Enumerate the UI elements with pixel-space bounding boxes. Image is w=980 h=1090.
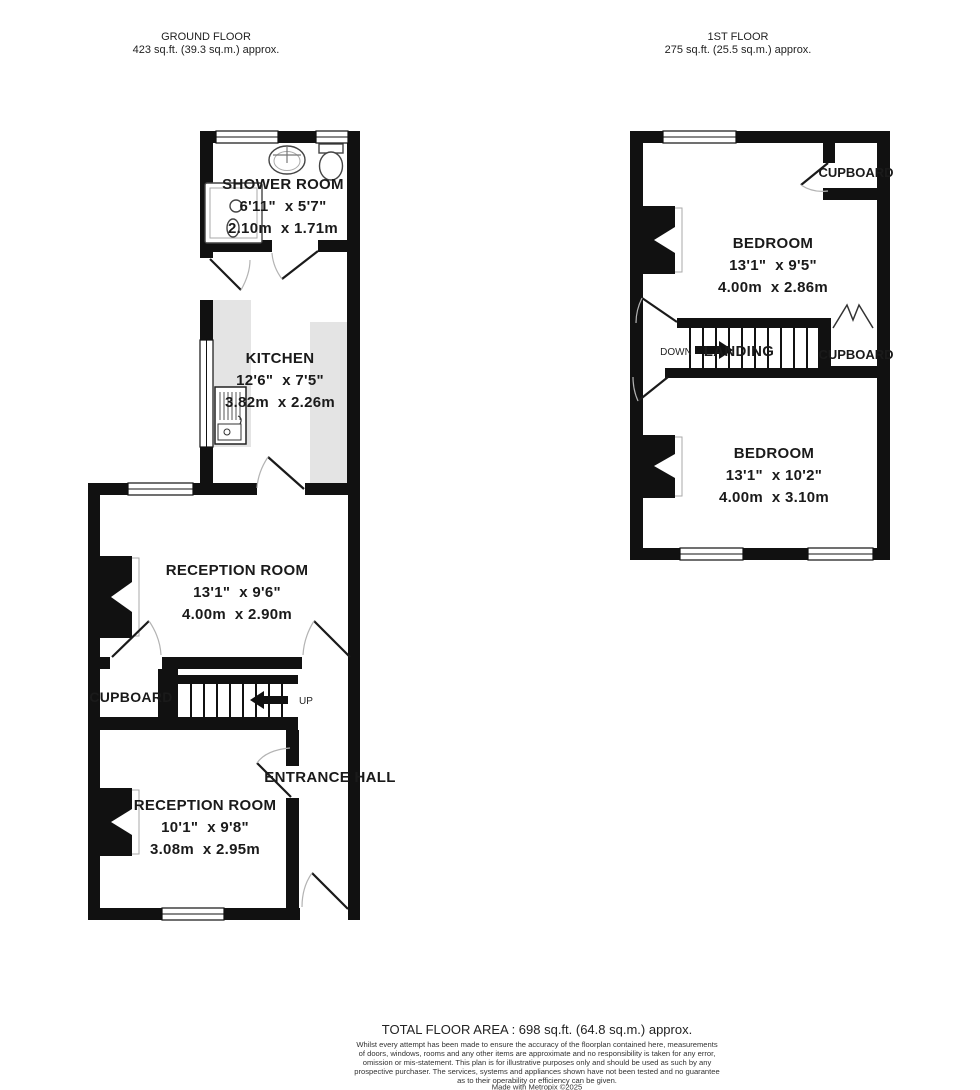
room-label: BEDROOM: [733, 235, 813, 252]
wall: [88, 908, 162, 920]
credit-line: Made with Metropix ©2025: [492, 1083, 582, 1090]
window: [663, 131, 736, 143]
window: [216, 131, 278, 143]
window: [128, 483, 193, 495]
door: [210, 259, 250, 290]
room-label: KITCHEN: [246, 350, 315, 367]
ground-floor-title: GROUND FLOOR: [161, 31, 251, 43]
first-floor-area: 275 sq.ft. (25.5 sq.m.) approx.: [665, 44, 812, 56]
disclaimer-line: Whilst every attempt has been made to en…: [356, 1040, 718, 1049]
room-dim-imperial: 10'1" x 9'8": [161, 819, 249, 836]
cupboard-label: CUPBOARD: [89, 689, 172, 705]
up-label: UP: [299, 696, 313, 707]
room-dim-imperial: 13'1" x 9'5": [729, 257, 817, 274]
wall: [823, 188, 890, 200]
chimney-breast: [643, 435, 682, 498]
wall: [224, 908, 300, 920]
ground-floor-area: 423 sq.ft. (39.3 sq.m.) approx.: [133, 44, 280, 56]
window: [808, 548, 873, 560]
front-door: [302, 873, 348, 909]
wall: [677, 318, 823, 328]
wall: [88, 657, 110, 669]
entrance-hall-label: ENTRANCE HALL: [264, 769, 395, 786]
room-dim-metric: 3.82m x 2.26m: [225, 394, 335, 411]
door: [257, 457, 304, 489]
room-dim-metric: 2.10m x 1.71m: [228, 220, 338, 237]
room-dim-imperial: 6'11" x 5'7": [240, 198, 327, 215]
room-label: SHOWER ROOM: [222, 176, 344, 193]
wall: [347, 131, 360, 495]
footer: TOTAL FLOOR AREA : 698 sq.ft. (64.8 sq.m…: [354, 1022, 719, 1090]
door: [303, 621, 350, 657]
ground-floor-plan: GROUND FLOOR 423 sq.ft. (39.3 sq.m.) app…: [88, 31, 396, 920]
wall: [348, 495, 360, 920]
first-floor-plan: 1ST FLOOR 275 sq.ft. (25.5 sq.m.) approx…: [630, 31, 894, 560]
window: [200, 340, 213, 447]
wall: [630, 131, 643, 560]
wall: [665, 368, 823, 378]
wall: [162, 657, 302, 669]
down-label: DOWN: [660, 347, 692, 358]
wall: [88, 717, 298, 730]
room-dim-metric: 4.00m x 2.86m: [718, 279, 828, 296]
room-label: RECEPTION ROOM: [166, 562, 309, 579]
door: [272, 251, 318, 279]
wall: [823, 143, 835, 163]
room-label: BEDROOM: [734, 445, 814, 462]
floorplan-canvas: GROUND FLOOR 423 sq.ft. (39.3 sq.m.) app…: [0, 0, 980, 1090]
wall: [193, 483, 257, 495]
wall: [286, 798, 299, 908]
landing-label: LANDING: [704, 343, 774, 360]
room-dim-imperial: 13'1" x 9'6": [193, 584, 281, 601]
room-dim-metric: 4.00m x 2.90m: [182, 606, 292, 623]
total-floor-area: TOTAL FLOOR AREA : 698 sq.ft. (64.8 sq.m…: [382, 1022, 692, 1037]
window: [162, 908, 224, 920]
first-floor-title: 1ST FLOOR: [708, 31, 769, 43]
disclaimer-line: prospective purchaser. The services, sys…: [354, 1067, 719, 1076]
disclaimer-line: of doors, windows, rooms and any other i…: [359, 1049, 716, 1058]
room-label: RECEPTION ROOM: [134, 797, 277, 814]
cupboard-label: CUPBOARD: [818, 165, 893, 180]
window: [316, 131, 348, 143]
cupboard-label: CUPBOARD: [818, 347, 893, 362]
basin-icon: [269, 146, 305, 174]
disclaimer-line: omission or mis-statement. This plan is …: [363, 1058, 712, 1067]
wall: [178, 675, 298, 684]
wall: [318, 240, 360, 252]
first-floor-labels: CUPBOARD BEDROOM 13'1" x 9'5" 4.00m x 2.…: [704, 165, 894, 506]
chimney-breast: [100, 556, 139, 638]
window: [680, 548, 743, 560]
wall: [200, 300, 213, 340]
wall: [818, 366, 890, 378]
staircase-up: UP: [191, 684, 313, 717]
toilet-icon: [319, 144, 343, 180]
bifold-door: [833, 305, 873, 328]
room-dim-metric: 4.00m x 3.10m: [719, 489, 829, 506]
room-dim-metric: 3.08m x 2.95m: [150, 841, 260, 858]
chimney-breast: [643, 206, 682, 274]
room-dim-imperial: 12'6" x 7'5": [236, 372, 324, 389]
room-dim-imperial: 13'1" x 10'2": [726, 467, 822, 484]
wall: [305, 483, 360, 495]
